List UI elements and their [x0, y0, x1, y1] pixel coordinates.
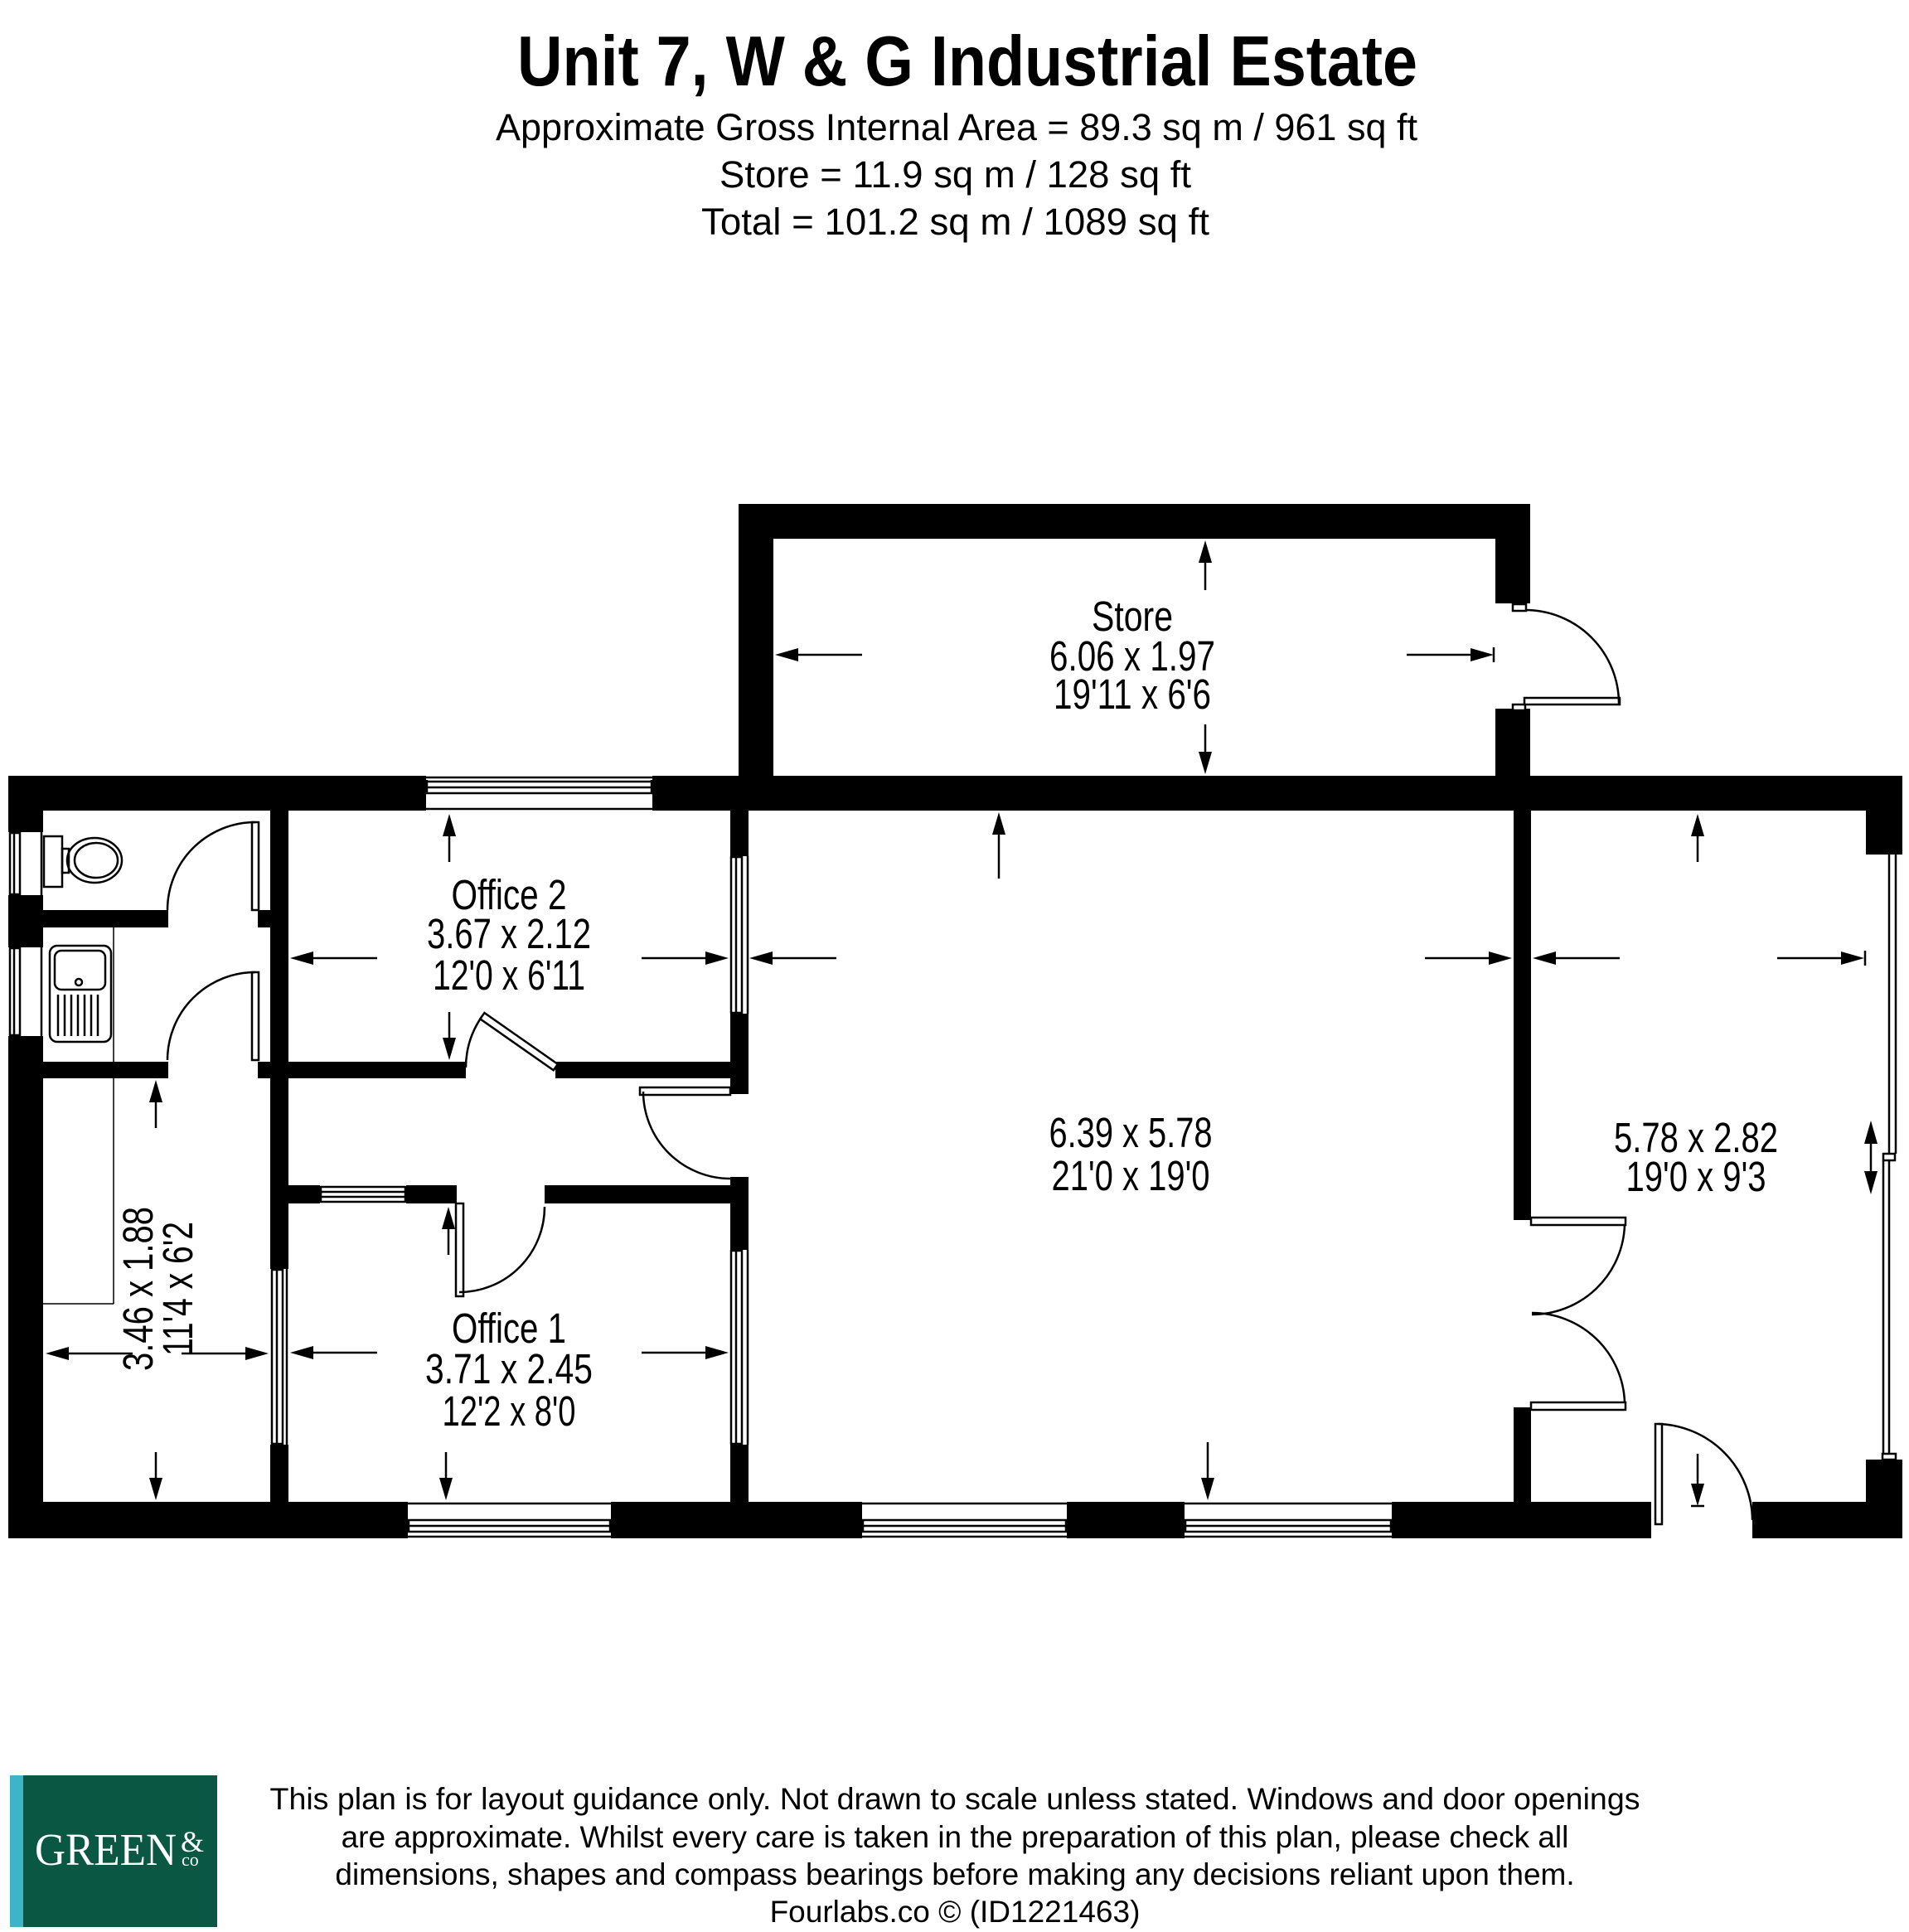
svg-text:dimensions, shapes and compass: dimensions, shapes and compass bearings … [335, 1857, 1574, 1891]
svg-text:Store = 11.9 sq m / 128 sq ft: Store = 11.9 sq m / 128 sq ft [720, 153, 1191, 196]
svg-text:Total = 101.2 sq m / 1089 sq f: Total = 101.2 sq m / 1089 sq ft [701, 201, 1209, 243]
svg-text:GREEN: GREEN [35, 1824, 177, 1875]
svg-text:3.71 x 2.45: 3.71 x 2.45 [425, 1345, 593, 1392]
svg-text:This plan is for layout guidan: This plan is for layout guidance only. N… [270, 1782, 1640, 1816]
svg-text:19'11 x 6'6: 19'11 x 6'6 [1054, 671, 1211, 718]
svg-text:21'0 x 19'0: 21'0 x 19'0 [1052, 1152, 1210, 1199]
svg-text:Fourlabs.co © (ID1221463): Fourlabs.co © (ID1221463) [770, 1895, 1141, 1929]
svg-text:12'2 x 8'0: 12'2 x 8'0 [443, 1387, 576, 1435]
svg-text:co: co [182, 1849, 199, 1870]
svg-text:are approximate. Whilst every: are approximate. Whilst every care is ta… [342, 1820, 1569, 1854]
svg-text:Unit 7, W & G Industrial Estat: Unit 7, W & G Industrial Estate [517, 22, 1417, 101]
svg-text:Approximate Gross Internal Are: Approximate Gross Internal Area = 89.3 s… [496, 106, 1417, 148]
svg-text:6.39 x 5.78: 6.39 x 5.78 [1049, 1109, 1213, 1156]
svg-text:3.67 x 2.12: 3.67 x 2.12 [427, 910, 591, 957]
svg-text:11'4 x 6'2: 11'4 x 6'2 [154, 1222, 201, 1356]
svg-text:19'0 x 9'3: 19'0 x 9'3 [1626, 1153, 1766, 1200]
svg-text:12'0 x 6'11: 12'0 x 6'11 [433, 951, 585, 999]
